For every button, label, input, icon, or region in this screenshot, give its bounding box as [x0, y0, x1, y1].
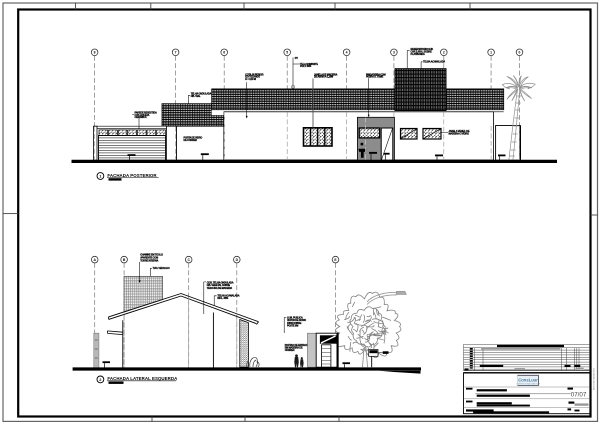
svg-text:ConsLuar: ConsLuar [518, 378, 538, 383]
svg-text:COB. TELHA ONDULADAFIB. VEGETA: COB. TELHA ONDULADAFIB. VEGETAL SOBRETES… [207, 281, 234, 290]
svg-text:TIJO. VEDACAO: TIJO. VEDACAO [153, 267, 170, 270]
svg-text:JANELA VENEZ. DEMADEIRA C/ VID: JANELA VENEZ. DEMADEIRA C/ VIDRO [449, 130, 470, 135]
svg-text:3: 3 [393, 51, 395, 55]
svg-text:CONSTRUTORA LUAR LTDA: CONSTRUTORA LUAR LTDA [516, 383, 541, 386]
svg-text:2: 2 [443, 51, 445, 55]
svg-text:FACHADA POSTERIOR: FACHADA POSTERIOR [107, 173, 157, 178]
svg-text:0: 0 [519, 51, 521, 55]
svg-text:8: 8 [94, 51, 96, 55]
svg-text:07/07: 07/07 [571, 391, 587, 398]
svg-text:5: 5 [286, 51, 288, 55]
svg-text:7: 7 [175, 51, 177, 55]
svg-text:PINGADEIRA COMPEDRA S. TOME: PINGADEIRA COMPEDRA S. TOME [366, 73, 386, 78]
svg-text:6: 6 [223, 51, 225, 55]
svg-text:PV: PV [295, 57, 298, 60]
svg-text:ARQ-FACHADAS-R01: ARQ-FACHADAS-R01 [593, 367, 596, 390]
svg-text:4: 4 [346, 51, 348, 55]
svg-text:TELHA ACANALADA: TELHA ACANALADA [423, 61, 445, 64]
svg-text:1: 1 [490, 51, 492, 55]
svg-text:FACHADA LATERAL ESQUERDA: FACHADA LATERAL ESQUERDA [107, 376, 178, 381]
